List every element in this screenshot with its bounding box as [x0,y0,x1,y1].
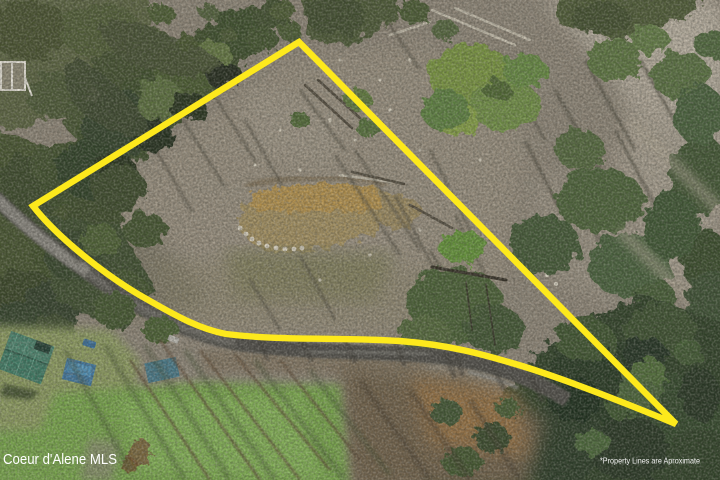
svg-text:*Property Lines are Aproximate: *Property Lines are Aproximate [600,456,700,466]
svg-text:Coeur d'Alene MLS: Coeur d'Alene MLS [3,451,117,468]
